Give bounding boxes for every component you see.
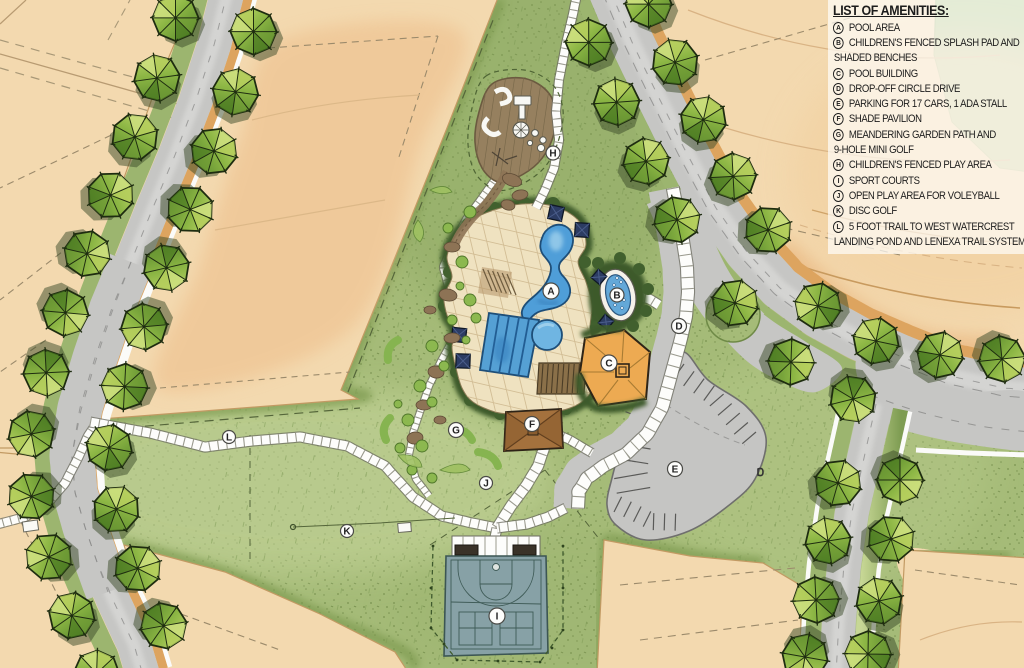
svg-text:H: H xyxy=(549,148,556,159)
svg-text:J: J xyxy=(483,478,489,489)
svg-text:G: G xyxy=(452,425,460,436)
svg-text:E: E xyxy=(672,464,679,475)
svg-text:I: I xyxy=(496,611,499,622)
svg-text:L: L xyxy=(226,432,232,443)
svg-text:F: F xyxy=(529,419,535,430)
svg-text:K: K xyxy=(343,526,351,537)
svg-text:B: B xyxy=(613,290,620,301)
svg-text:C: C xyxy=(605,358,612,369)
svg-text:D: D xyxy=(675,321,682,332)
svg-text:A: A xyxy=(547,286,554,297)
